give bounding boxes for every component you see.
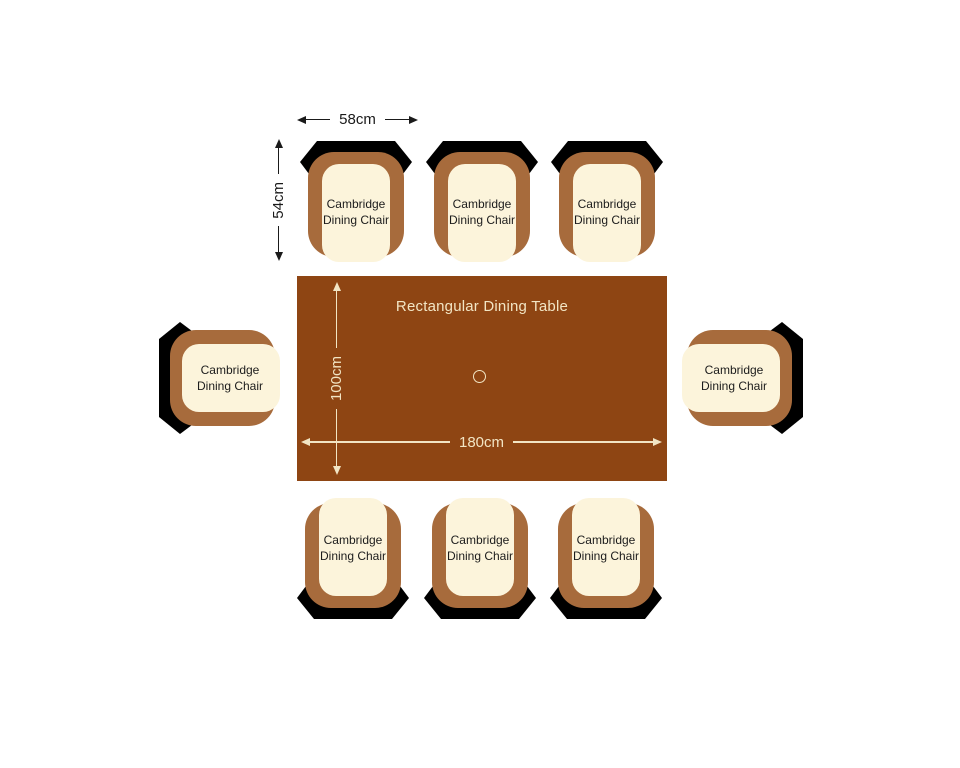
table-length-label: 180cm (459, 434, 504, 451)
dimension-line (385, 119, 409, 121)
chair-bottom-left: Cambridge Dining Chair (297, 498, 409, 620)
chair-bottom-center: Cambridge Dining Chair (424, 498, 536, 620)
dining-table: Rectangular Dining Table 100cm 180cm (297, 276, 667, 481)
chair-depth-label: 54cm (270, 182, 287, 219)
table-title: Rectangular Dining Table (297, 298, 667, 315)
arrow-up-icon (333, 282, 341, 291)
arrow-up-icon (275, 139, 283, 148)
chair-label: Cambridge Dining Chair (196, 344, 264, 412)
table-length-dimension: 180cm (301, 432, 662, 452)
chair-label: Cambridge Dining Chair (322, 166, 390, 258)
dimension-line (310, 441, 450, 443)
arrow-right-icon (653, 438, 662, 446)
chair-bottom-right: Cambridge Dining Chair (550, 498, 662, 620)
arrow-left-icon (301, 438, 310, 446)
dimension-line (306, 119, 330, 121)
dimension-line (336, 291, 338, 348)
chair-width-dimension: 58cm (297, 111, 418, 128)
chair-label: Cambridge Dining Chair (448, 166, 516, 258)
chair-left: Cambridge Dining Chair (158, 322, 280, 434)
chair-label: Cambridge Dining Chair (700, 344, 768, 412)
arrow-down-icon (333, 466, 341, 475)
chair-top-center: Cambridge Dining Chair (426, 140, 538, 262)
dimension-line (278, 148, 280, 174)
dimension-line (278, 226, 280, 252)
chair-top-right: Cambridge Dining Chair (551, 140, 663, 262)
chair-top-left: Cambridge Dining Chair (300, 140, 412, 262)
chair-right: Cambridge Dining Chair (682, 322, 804, 434)
chair-label: Cambridge Dining Chair (572, 502, 640, 594)
dimension-line (513, 441, 653, 443)
chair-label: Cambridge Dining Chair (319, 502, 387, 594)
chair-label: Cambridge Dining Chair (573, 166, 641, 258)
table-center-marker-icon (473, 370, 486, 383)
chair-label: Cambridge Dining Chair (446, 502, 514, 594)
arrow-right-icon (409, 116, 418, 124)
table-depth-label: 100cm (328, 356, 345, 401)
chair-depth-dimension: 54cm (270, 139, 287, 261)
chair-width-label: 58cm (339, 111, 376, 128)
dining-set-diagram: 58cm 54cm Rectangular Dining Table 100cm… (0, 0, 960, 768)
arrow-down-icon (275, 252, 283, 261)
arrow-left-icon (297, 116, 306, 124)
